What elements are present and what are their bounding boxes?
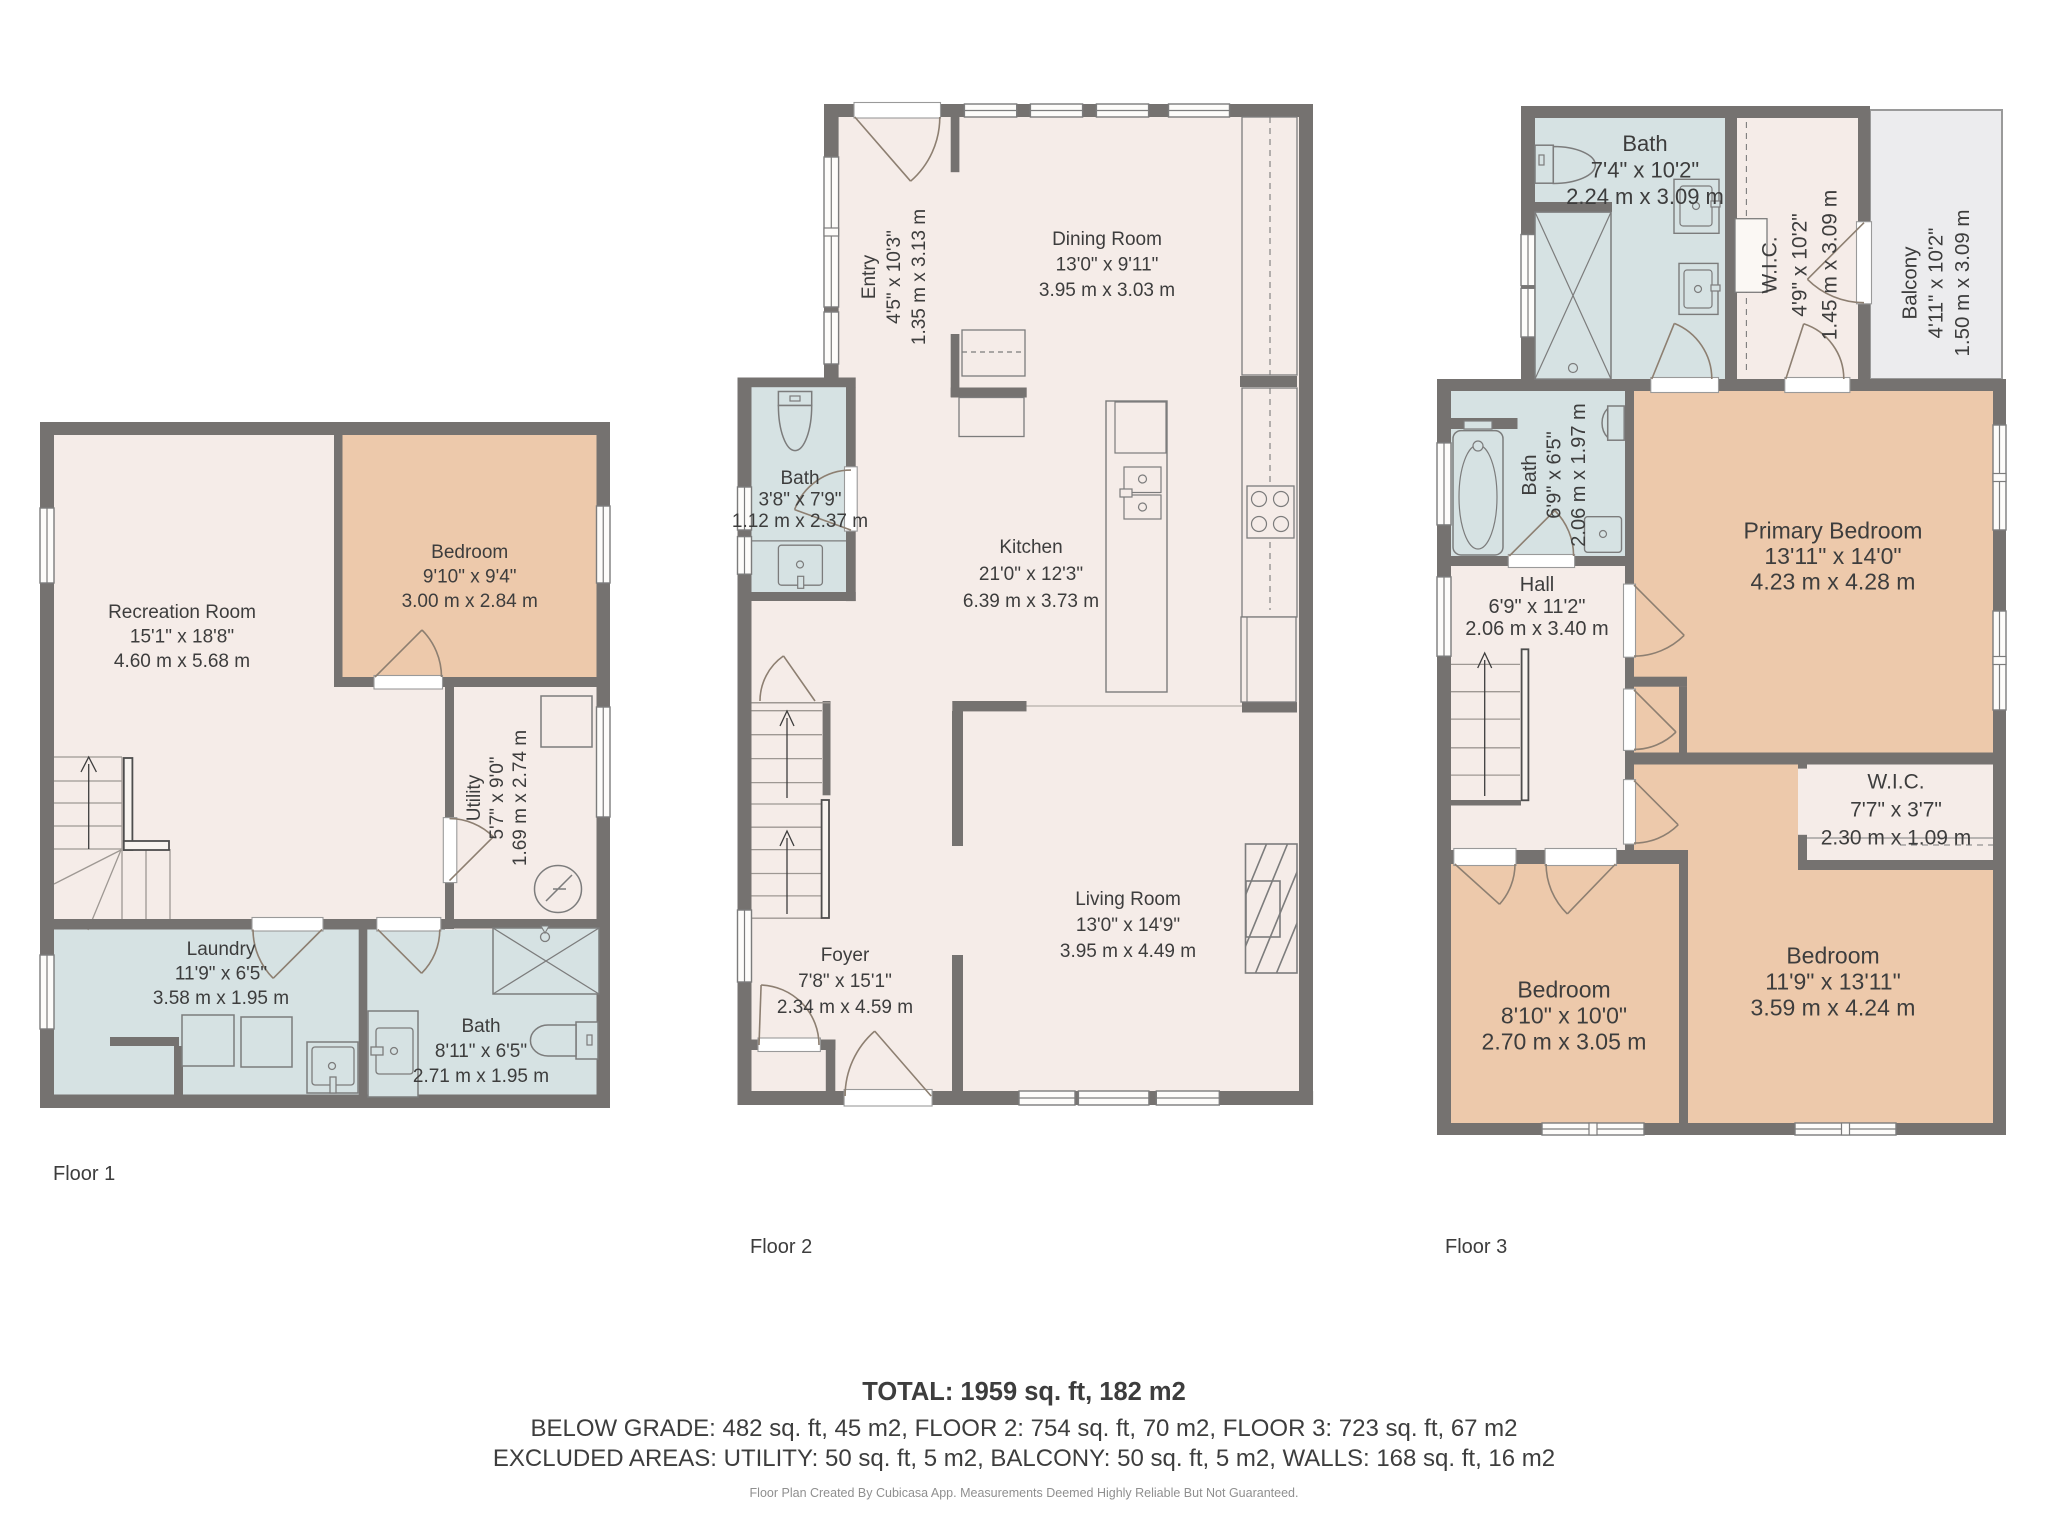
svg-text:21'0" x 12'3": 21'0" x 12'3" bbox=[979, 564, 1083, 585]
svg-text:2.34 m x 4.59 m: 2.34 m x 4.59 m bbox=[777, 997, 913, 1018]
svg-text:2.71 m x 1.95 m: 2.71 m x 1.95 m bbox=[413, 1066, 549, 1087]
svg-text:9'10" x 9'4": 9'10" x 9'4" bbox=[423, 566, 517, 587]
svg-text:4.60 m x 5.68 m: 4.60 m x 5.68 m bbox=[114, 651, 250, 672]
svg-text:EXCLUDED AREAS: UTILITY: 50 sq: EXCLUDED AREAS: UTILITY: 50 sq. ft, 5 m2… bbox=[493, 1445, 1555, 1472]
svg-text:4'9" x 10'2": 4'9" x 10'2" bbox=[1789, 213, 1812, 317]
svg-text:Bath: Bath bbox=[1519, 454, 1541, 495]
svg-text:Bedroom: Bedroom bbox=[1517, 976, 1610, 1002]
svg-text:3.00 m x 2.84 m: 3.00 m x 2.84 m bbox=[402, 591, 538, 612]
svg-text:Balcony: Balcony bbox=[1898, 246, 1921, 320]
svg-text:6'9" x 11'2": 6'9" x 11'2" bbox=[1488, 596, 1585, 618]
svg-text:TOTAL: 1959 sq. ft, 182 m2: TOTAL: 1959 sq. ft, 182 m2 bbox=[862, 1378, 1186, 1406]
svg-text:1.69 m x 2.74 m: 1.69 m x 2.74 m bbox=[510, 730, 531, 866]
svg-text:2.06 m x 3.40 m: 2.06 m x 3.40 m bbox=[1465, 618, 1608, 640]
svg-text:8'10" x 10'0": 8'10" x 10'0" bbox=[1501, 1002, 1627, 1028]
svg-text:13'0" x 14'9": 13'0" x 14'9" bbox=[1076, 915, 1180, 936]
svg-text:8'11" x 6'5": 8'11" x 6'5" bbox=[435, 1041, 527, 1062]
svg-text:Dining Room: Dining Room bbox=[1052, 229, 1162, 250]
svg-text:5'7" x 9'0": 5'7" x 9'0" bbox=[487, 756, 508, 839]
svg-text:1.35 m x 3.13 m: 1.35 m x 3.13 m bbox=[909, 209, 930, 345]
svg-text:7'7" x 3'7": 7'7" x 3'7" bbox=[1850, 799, 1942, 822]
svg-text:2.30 m x 1.09 m: 2.30 m x 1.09 m bbox=[1821, 827, 1972, 850]
svg-text:2.70 m x 3.05 m: 2.70 m x 3.05 m bbox=[1482, 1028, 1647, 1054]
svg-text:Bedroom: Bedroom bbox=[1786, 942, 1879, 968]
svg-text:Utility: Utility bbox=[464, 774, 485, 821]
svg-text:BELOW GRADE: 482 sq. ft, 45 m2: BELOW GRADE: 482 sq. ft, 45 m2, FLOOR 2:… bbox=[530, 1415, 1517, 1442]
svg-text:7'4" x 10'2": 7'4" x 10'2" bbox=[1591, 157, 1699, 182]
svg-text:Laundry: Laundry bbox=[187, 939, 256, 960]
svg-text:2.06 m x 1.97 m: 2.06 m x 1.97 m bbox=[1568, 403, 1590, 546]
svg-text:1.50 m x 3.09 m: 1.50 m x 3.09 m bbox=[1951, 210, 1974, 357]
svg-text:4.23 m x 4.28 m: 4.23 m x 4.28 m bbox=[1751, 568, 1916, 594]
svg-text:Primary Bedroom: Primary Bedroom bbox=[1744, 517, 1923, 543]
svg-text:11'9" x 13'11": 11'9" x 13'11" bbox=[1765, 968, 1901, 994]
svg-text:Bath: Bath bbox=[1622, 131, 1667, 156]
svg-text:13'11" x 14'0": 13'11" x 14'0" bbox=[1764, 543, 1901, 569]
svg-text:Hall: Hall bbox=[1520, 574, 1554, 596]
svg-text:Floor 3: Floor 3 bbox=[1445, 1236, 1507, 1258]
svg-text:Floor Plan Created By Cubicasa: Floor Plan Created By Cubicasa App. Meas… bbox=[750, 1486, 1299, 1500]
svg-text:Floor 2: Floor 2 bbox=[750, 1236, 812, 1258]
svg-text:4'11" x 10'2": 4'11" x 10'2" bbox=[1925, 228, 1948, 339]
svg-text:6'9" x 6'5": 6'9" x 6'5" bbox=[1544, 431, 1566, 518]
svg-text:Floor 1: Floor 1 bbox=[53, 1163, 115, 1185]
svg-text:15'1" x 18'8": 15'1" x 18'8" bbox=[130, 626, 234, 647]
svg-text:Bath: Bath bbox=[780, 468, 819, 489]
svg-text:Kitchen: Kitchen bbox=[999, 537, 1062, 558]
svg-text:Foyer: Foyer bbox=[821, 945, 870, 966]
svg-text:1.45 m x 3.09 m: 1.45 m x 3.09 m bbox=[1819, 190, 1842, 341]
svg-text:Living Room: Living Room bbox=[1075, 889, 1181, 910]
svg-text:4'5" x 10'3": 4'5" x 10'3" bbox=[884, 230, 905, 324]
svg-text:3.59 m x 4.24 m: 3.59 m x 4.24 m bbox=[1751, 994, 1916, 1020]
svg-text:2.24 m x 3.09 m: 2.24 m x 3.09 m bbox=[1566, 184, 1724, 209]
svg-text:W.I.C.: W.I.C. bbox=[1759, 236, 1782, 293]
svg-text:13'0" x 9'11": 13'0" x 9'11" bbox=[1056, 254, 1159, 275]
svg-text:Entry: Entry bbox=[859, 254, 880, 299]
svg-text:Recreation Room: Recreation Room bbox=[108, 602, 256, 623]
svg-text:11'9" x 6'5": 11'9" x 6'5" bbox=[175, 963, 267, 984]
svg-text:W.I.C.: W.I.C. bbox=[1867, 771, 1924, 794]
svg-text:3.95 m x 3.03 m: 3.95 m x 3.03 m bbox=[1039, 280, 1175, 301]
svg-text:3.58 m x 1.95 m: 3.58 m x 1.95 m bbox=[153, 988, 289, 1009]
svg-text:Bedroom: Bedroom bbox=[431, 542, 508, 563]
svg-text:Bath: Bath bbox=[461, 1016, 500, 1037]
svg-text:1.12 m x 2.37 m: 1.12 m x 2.37 m bbox=[732, 511, 868, 532]
svg-text:7'8" x 15'1": 7'8" x 15'1" bbox=[798, 971, 892, 992]
svg-text:3'8" x 7'9": 3'8" x 7'9" bbox=[758, 489, 841, 510]
svg-text:3.95 m x 4.49 m: 3.95 m x 4.49 m bbox=[1060, 941, 1196, 962]
svg-text:6.39 m x 3.73 m: 6.39 m x 3.73 m bbox=[963, 591, 1099, 612]
